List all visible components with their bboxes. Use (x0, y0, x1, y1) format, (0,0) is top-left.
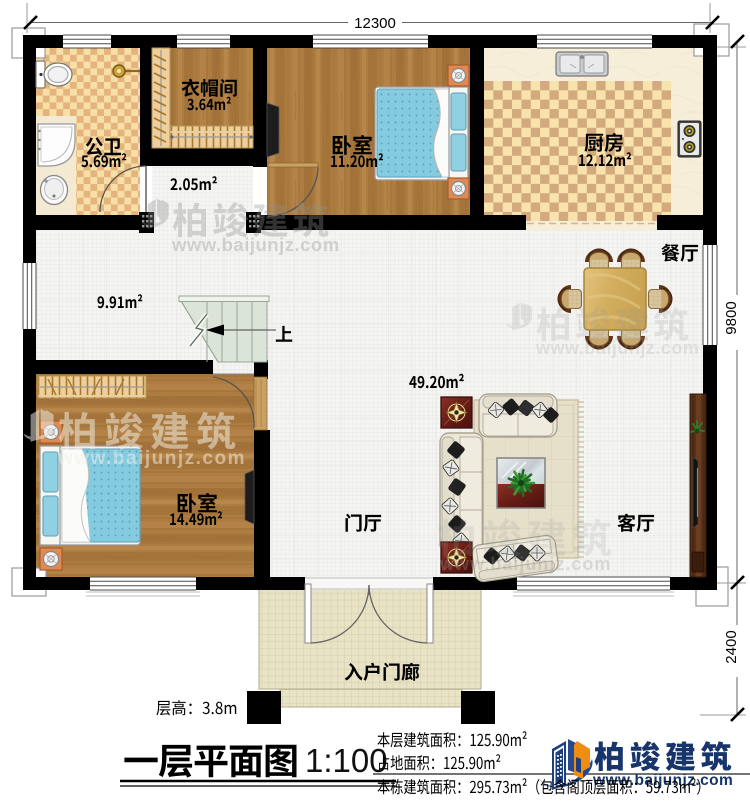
svg-text:www.baijunjz.com: www.baijunjz.com (535, 338, 699, 358)
svg-text:9800: 9800 (723, 301, 740, 334)
svg-text:www.baijunjz.com: www.baijunjz.com (171, 234, 340, 255)
svg-text:www.baijunjz.com: www.baijunjz.com (57, 448, 246, 469)
svg-text:www.baijunjz.com: www.baijunjz.com (439, 554, 611, 574)
svg-text:12300: 12300 (354, 15, 396, 32)
svg-text:2400: 2400 (723, 630, 740, 663)
